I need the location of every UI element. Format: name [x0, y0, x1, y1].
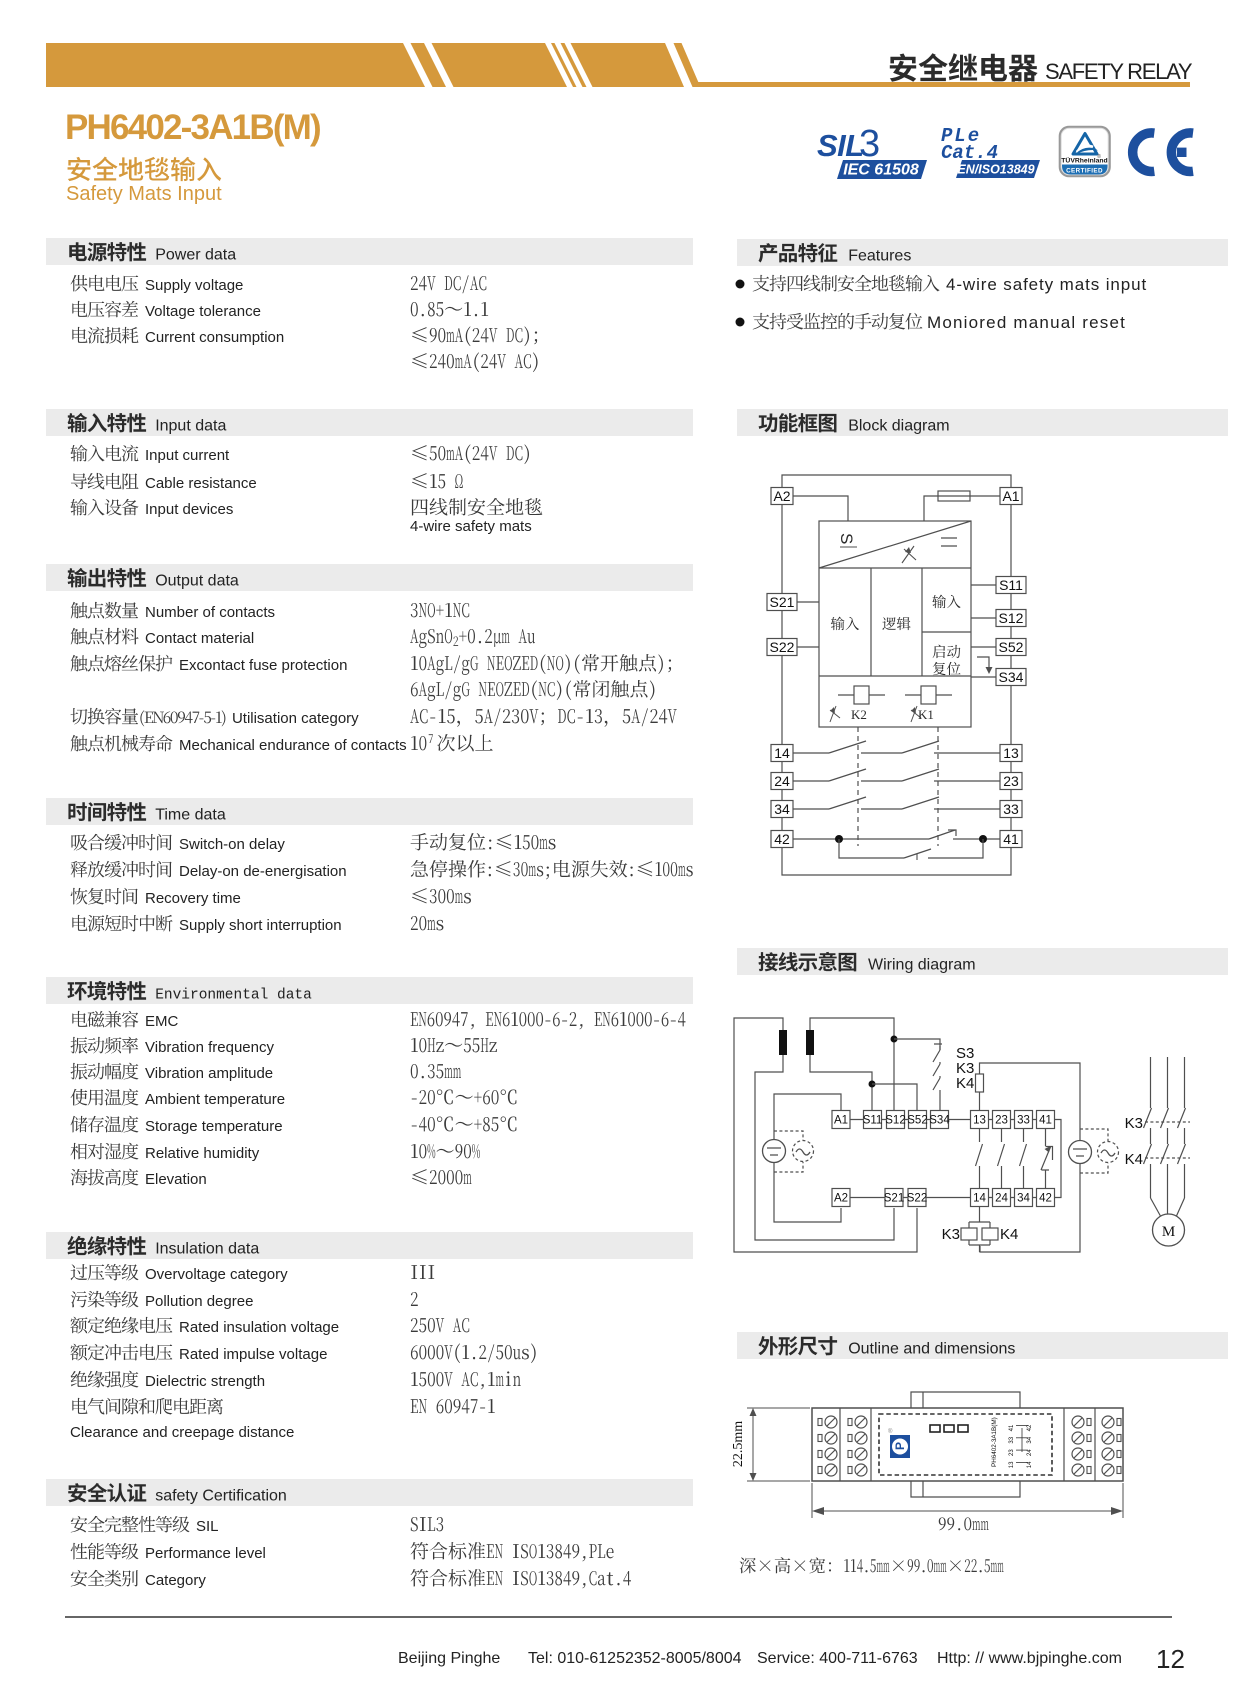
svg-text:SIL: SIL	[817, 128, 864, 163]
svg-text:S21: S21	[884, 1193, 904, 1205]
svg-text:Ambient temperature: Ambient temperature	[145, 1091, 285, 1108]
svg-text:41: 41	[1039, 1115, 1052, 1127]
svg-text:Environmental data: Environmental data	[155, 988, 312, 1004]
svg-text:23: 23	[1009, 1449, 1015, 1456]
svg-text:Supply voltage: Supply voltage	[145, 277, 243, 294]
svg-text:Outline and dimensions: Outline and dimensions	[848, 1341, 1015, 1358]
svg-text:Features: Features	[848, 248, 911, 265]
svg-text:S34: S34	[929, 1115, 950, 1127]
svg-text:4-wire safety mats: 4-wire safety mats	[410, 518, 532, 535]
svg-text:33: 33	[1017, 1115, 1030, 1127]
svg-text:S52: S52	[999, 639, 1024, 655]
svg-text:K4: K4	[956, 1075, 974, 1092]
svg-text:Recovery time: Recovery time	[145, 890, 241, 907]
svg-text:42: 42	[1039, 1193, 1052, 1205]
svg-text:14: 14	[973, 1193, 986, 1205]
svg-text:K3: K3	[942, 1226, 960, 1243]
svg-text:Time data: Time data	[155, 807, 226, 824]
svg-text:Input devices: Input devices	[145, 501, 233, 518]
svg-text:42: 42	[774, 831, 790, 847]
svg-text:Cable resistance: Cable resistance	[145, 475, 257, 492]
svg-text:Input data: Input data	[155, 418, 226, 435]
svg-text:Supply short interruption: Supply short interruption	[179, 917, 342, 934]
svg-text:Vibration frequency: Vibration frequency	[145, 1039, 274, 1056]
svg-text:Service: 400-711-6763: Service: 400-711-6763	[757, 1650, 918, 1667]
svg-text:24: 24	[774, 773, 790, 789]
svg-text:S12: S12	[885, 1115, 905, 1127]
svg-text:S22: S22	[907, 1193, 927, 1205]
svg-text:41: 41	[1009, 1424, 1015, 1431]
svg-text:Tel: 010-61252352-8005/8004: Tel: 010-61252352-8005/8004	[528, 1650, 742, 1667]
svg-text:K4: K4	[1125, 1151, 1143, 1168]
svg-text:Current consumption: Current consumption	[145, 329, 284, 346]
svg-text:Rated insulation voltage: Rated insulation voltage	[179, 1319, 339, 1336]
svg-text:Clearance and creepage distanc: Clearance and creepage distance	[70, 1424, 294, 1441]
svg-text:M: M	[1162, 1224, 1175, 1240]
svg-text:K1: K1	[918, 707, 934, 722]
svg-text:SIL: SIL	[196, 1518, 219, 1535]
svg-text:Storage temperature: Storage temperature	[145, 1118, 283, 1135]
svg-text:S: S	[837, 533, 856, 544]
svg-text:Relative humidity: Relative humidity	[145, 1145, 260, 1162]
svg-text:Category: Category	[145, 1572, 206, 1589]
svg-text:EN/ISO13849: EN/ISO13849	[957, 163, 1034, 177]
svg-text:33: 33	[1003, 801, 1019, 817]
svg-text:Delay-on de-energisation: Delay-on de-energisation	[179, 863, 347, 880]
svg-text:K3: K3	[1125, 1115, 1143, 1132]
svg-text:34: 34	[1017, 1193, 1030, 1205]
svg-text:23: 23	[1003, 773, 1019, 789]
svg-text:14: 14	[774, 745, 790, 761]
svg-text:Vibration amplitude: Vibration amplitude	[145, 1065, 273, 1082]
svg-text:S34: S34	[999, 669, 1024, 685]
svg-text:®: ®	[888, 1428, 893, 1435]
svg-text:24: 24	[995, 1193, 1008, 1205]
svg-text:13: 13	[1003, 745, 1019, 761]
svg-text:13: 13	[1009, 1461, 1015, 1468]
svg-text:A2: A2	[834, 1193, 848, 1205]
svg-text:A2: A2	[773, 488, 790, 504]
svg-text:12: 12	[1156, 1644, 1185, 1674]
svg-text:S11: S11	[863, 1115, 883, 1127]
svg-text:41: 41	[1003, 831, 1019, 847]
svg-text:CERTIFIED: CERTIFIED	[1066, 168, 1103, 175]
svg-text:EMC: EMC	[145, 1013, 179, 1030]
svg-text:Wiring diagram: Wiring diagram	[868, 957, 976, 974]
svg-text:4-wire safety mats input: 4-wire safety mats input	[946, 275, 1147, 294]
svg-text:Power data: Power data	[155, 247, 236, 264]
svg-text:Pollution degree: Pollution degree	[145, 1293, 253, 1310]
svg-text:®: ®	[1097, 153, 1101, 160]
svg-text:S12: S12	[999, 610, 1024, 626]
svg-text:Number of contacts: Number of contacts	[145, 604, 275, 621]
svg-text:Overvoltage category: Overvoltage category	[145, 1266, 288, 1283]
svg-text:Input current: Input current	[145, 447, 230, 464]
svg-text:K4: K4	[1000, 1226, 1018, 1243]
svg-text:Mechanical endurance of contac: Mechanical endurance of contacts	[179, 737, 407, 754]
svg-text:IEC 61508: IEC 61508	[843, 162, 919, 179]
svg-text:Elevation: Elevation	[145, 1171, 207, 1188]
svg-text:PH6402-3A1B(M): PH6402-3A1B(M)	[991, 1417, 998, 1467]
svg-text:A1: A1	[834, 1115, 848, 1127]
svg-text:33: 33	[1009, 1436, 1015, 1443]
svg-text:34: 34	[774, 801, 790, 817]
svg-text:Performance level: Performance level	[145, 1545, 266, 1562]
svg-text:A1: A1	[1002, 488, 1019, 504]
svg-text:Output data: Output data	[155, 573, 239, 590]
svg-text:PH6402-3A1B(M): PH6402-3A1B(M)	[65, 108, 320, 147]
svg-text:Beijing Pinghe: Beijing Pinghe	[398, 1650, 500, 1667]
svg-text:Insulation data: Insulation data	[155, 1241, 259, 1258]
svg-text:Contact material: Contact material	[145, 630, 254, 647]
svg-text:Moniored manual reset: Moniored manual reset	[927, 313, 1126, 332]
svg-text:Utilisation category: Utilisation category	[232, 710, 359, 727]
svg-text:S11: S11	[999, 577, 1023, 593]
svg-text:Rated impulse voltage: Rated impulse voltage	[179, 1346, 327, 1363]
svg-text:S22: S22	[770, 639, 795, 655]
svg-text:Dielectric strength: Dielectric strength	[145, 1373, 265, 1390]
svg-text:S52: S52	[907, 1115, 927, 1127]
svg-text:13: 13	[973, 1115, 986, 1127]
svg-text:K2: K2	[851, 707, 867, 722]
svg-text:Excontact fuse protection: Excontact fuse protection	[179, 657, 347, 674]
svg-text:3: 3	[859, 123, 880, 165]
svg-text:22.5mm: 22.5mm	[731, 1421, 746, 1467]
svg-text:safety Certification: safety Certification	[155, 1488, 287, 1505]
svg-text:Voltage tolerance: Voltage tolerance	[145, 303, 261, 320]
svg-text:Switch-on delay: Switch-on delay	[179, 836, 285, 853]
svg-text:Safety Mats Input: Safety Mats Input	[66, 183, 222, 205]
svg-text:SAFETY RELAY: SAFETY RELAY	[1045, 59, 1193, 84]
svg-text:Http: // www.bjpinghe.com: Http: // www.bjpinghe.com	[937, 1650, 1122, 1667]
svg-text:Block diagram: Block diagram	[848, 418, 949, 435]
svg-text:23: 23	[995, 1115, 1008, 1127]
svg-text:S21: S21	[770, 594, 795, 610]
svg-text:P: P	[893, 1442, 907, 1450]
